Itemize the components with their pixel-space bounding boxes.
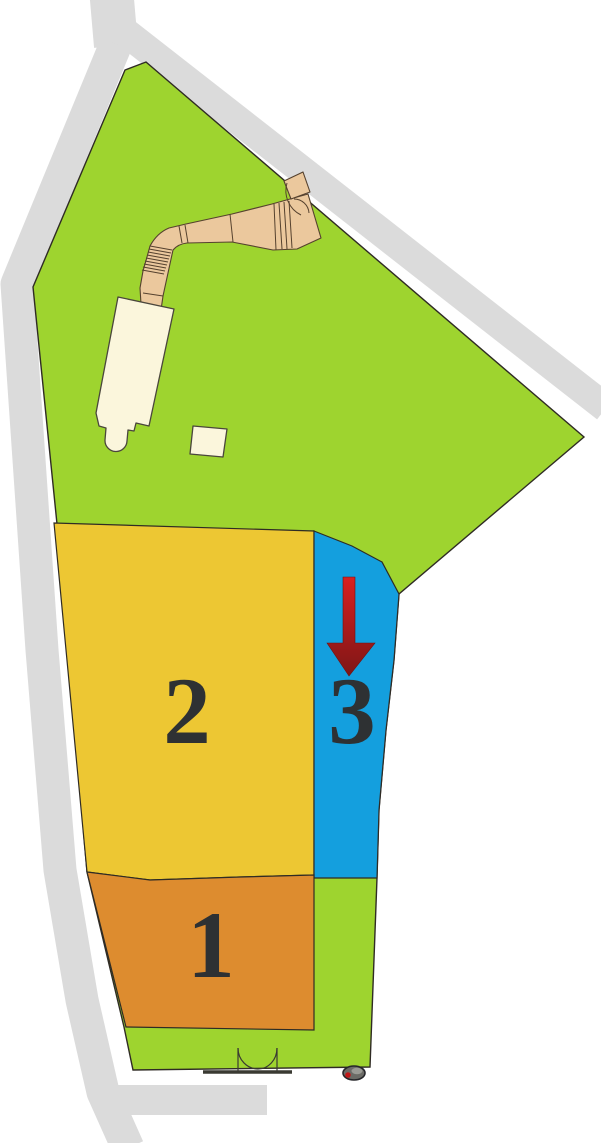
zone-1-label: 1: [187, 892, 235, 998]
outbuilding: [190, 426, 227, 457]
site-plan-map: 2 3 1: [0, 0, 601, 1143]
zone-3-label: 3: [328, 658, 376, 764]
vehicle-icon: [343, 1066, 365, 1080]
map-canvas: 2 3 1: [0, 0, 601, 1143]
zone-2-label: 2: [163, 658, 211, 764]
